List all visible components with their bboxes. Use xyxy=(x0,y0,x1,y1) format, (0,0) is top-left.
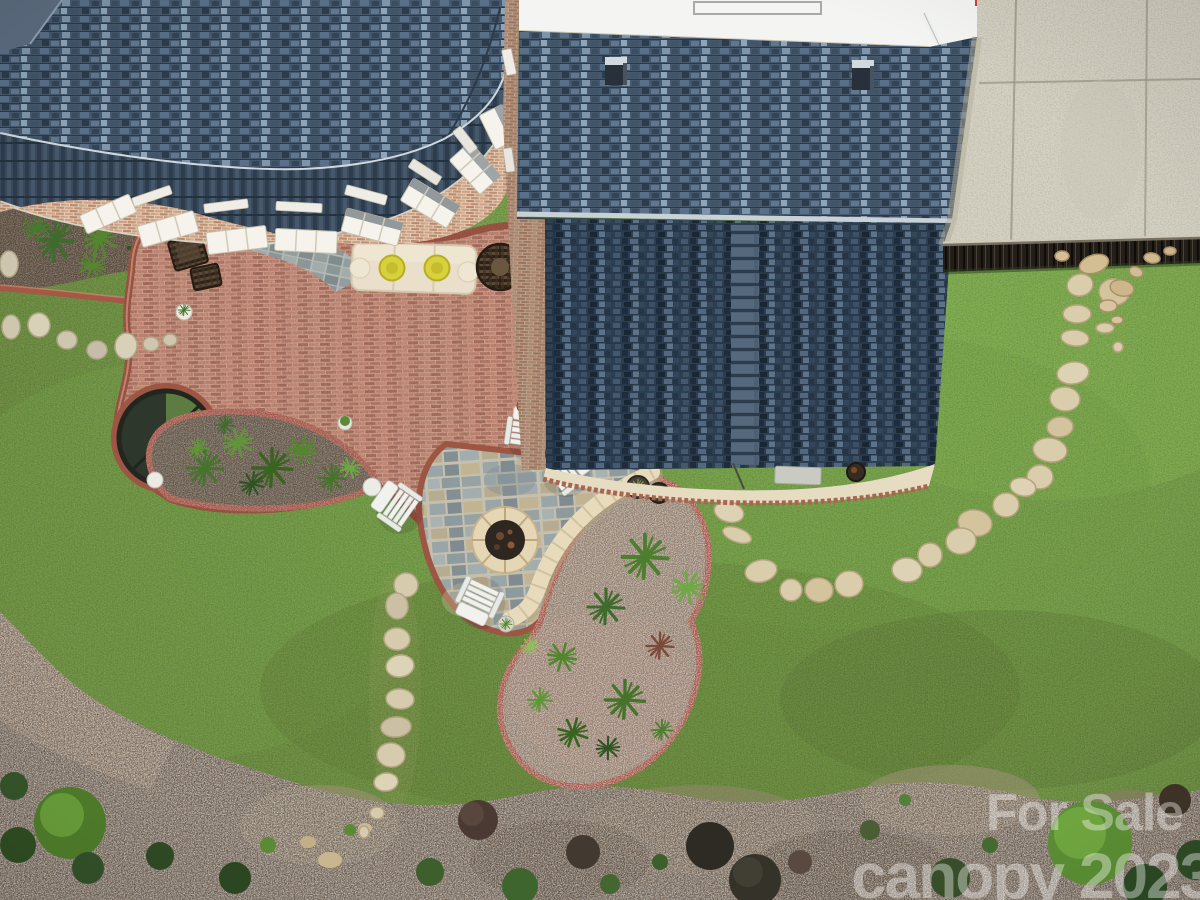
aerial-photo-frame: For Sale canopy 2023 xyxy=(0,0,1200,900)
watermark-line2: canopy 2023 xyxy=(851,840,1200,900)
aerial-photo: For Sale canopy 2023 xyxy=(0,0,1200,900)
vignette xyxy=(0,0,1200,900)
watermark-line1: For Sale xyxy=(986,784,1183,842)
